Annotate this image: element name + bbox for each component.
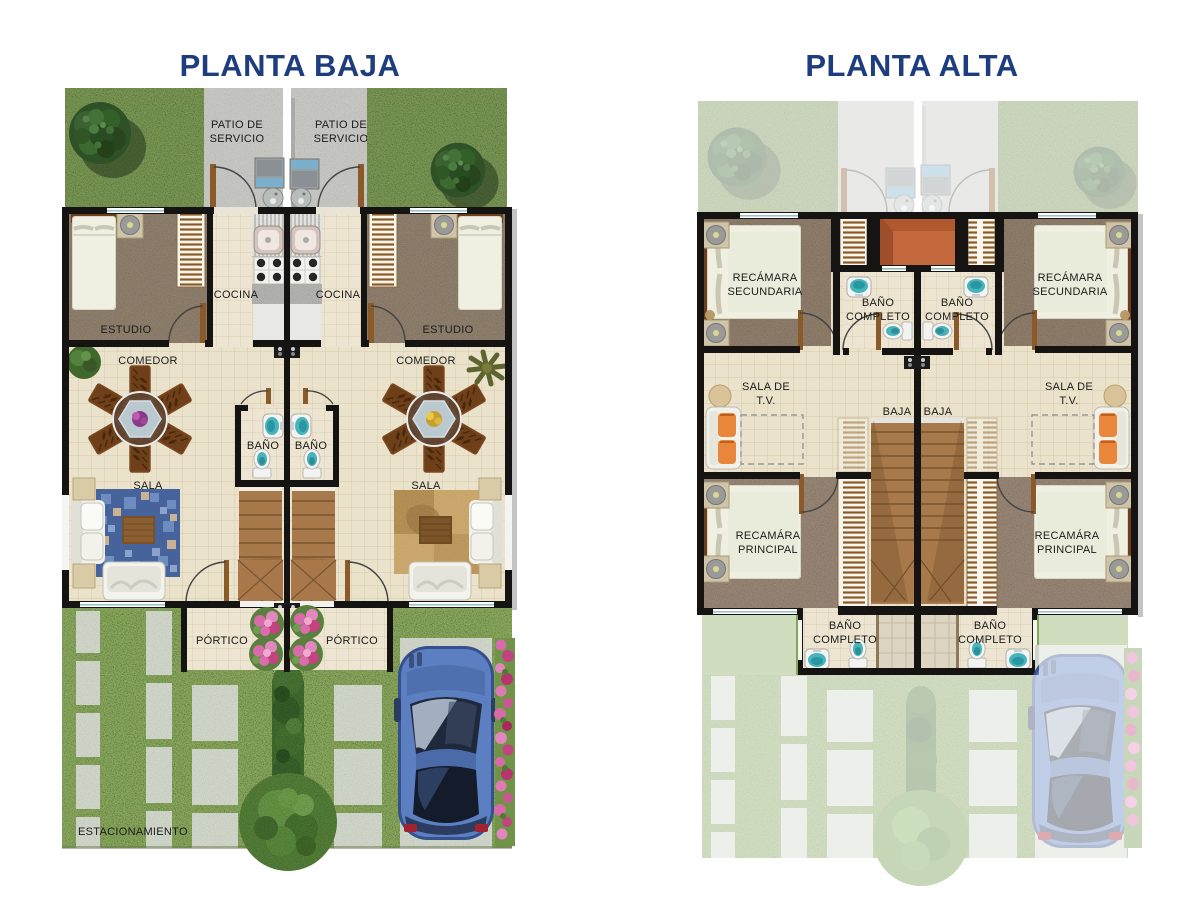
svg-text:RECAMÁRA: RECAMÁRA xyxy=(1035,529,1100,542)
svg-text:ESTUDIO: ESTUDIO xyxy=(423,324,474,336)
svg-text:RECAMÁRA: RECAMÁRA xyxy=(736,529,801,542)
svg-text:COMPLETO: COMPLETO xyxy=(813,634,877,646)
svg-text:RECÁMARA: RECÁMARA xyxy=(733,271,798,284)
svg-text:SECUNDARIA: SECUNDARIA xyxy=(727,286,802,298)
svg-text:PÓRTICO: PÓRTICO xyxy=(196,634,248,647)
svg-text:SERVICIO: SERVICIO xyxy=(314,133,369,145)
svg-text:BAÑO: BAÑO xyxy=(862,296,895,309)
svg-text:SALA DE: SALA DE xyxy=(742,381,790,393)
svg-text:ESTUDIO: ESTUDIO xyxy=(101,324,152,336)
svg-text:BAÑO: BAÑO xyxy=(941,296,974,309)
svg-text:PRINCIPAL: PRINCIPAL xyxy=(1037,544,1097,556)
svg-text:PATIO DE: PATIO DE xyxy=(315,119,367,131)
svg-text:COMPLETO: COMPLETO xyxy=(958,634,1022,646)
svg-text:COMPLETO: COMPLETO xyxy=(846,311,910,323)
svg-text:COMPLETO: COMPLETO xyxy=(925,311,989,323)
svg-text:SECUNDARIA: SECUNDARIA xyxy=(1032,286,1107,298)
svg-text:SERVICIO: SERVICIO xyxy=(210,133,265,145)
svg-text:T.V.: T.V. xyxy=(1059,395,1078,407)
svg-text:PÓRTICO: PÓRTICO xyxy=(326,634,378,647)
svg-text:BAÑO: BAÑO xyxy=(295,439,328,452)
svg-text:COCINA: COCINA xyxy=(316,289,361,301)
svg-text:BAJA: BAJA xyxy=(924,406,953,418)
svg-text:SALA: SALA xyxy=(133,480,163,492)
svg-text:COMEDOR: COMEDOR xyxy=(396,355,456,367)
svg-text:T.V.: T.V. xyxy=(756,395,775,407)
svg-text:PLANTA BAJA: PLANTA BAJA xyxy=(180,48,401,83)
svg-text:SALA DE: SALA DE xyxy=(1045,381,1093,393)
svg-text:COMEDOR: COMEDOR xyxy=(118,355,178,367)
svg-text:PRINCIPAL: PRINCIPAL xyxy=(738,544,798,556)
svg-text:COCINA: COCINA xyxy=(214,289,259,301)
svg-text:PLANTA ALTA: PLANTA ALTA xyxy=(805,48,1018,83)
svg-text:BAÑO: BAÑO xyxy=(974,619,1007,632)
svg-text:BAÑO: BAÑO xyxy=(247,439,280,452)
svg-text:ESTACIONAMIENTO: ESTACIONAMIENTO xyxy=(78,826,188,838)
svg-text:RECÁMARA: RECÁMARA xyxy=(1038,271,1103,284)
svg-text:PATIO DE: PATIO DE xyxy=(211,119,263,131)
svg-text:BAJA: BAJA xyxy=(883,406,912,418)
svg-text:BAÑO: BAÑO xyxy=(829,619,862,632)
svg-text:SALA: SALA xyxy=(411,480,441,492)
